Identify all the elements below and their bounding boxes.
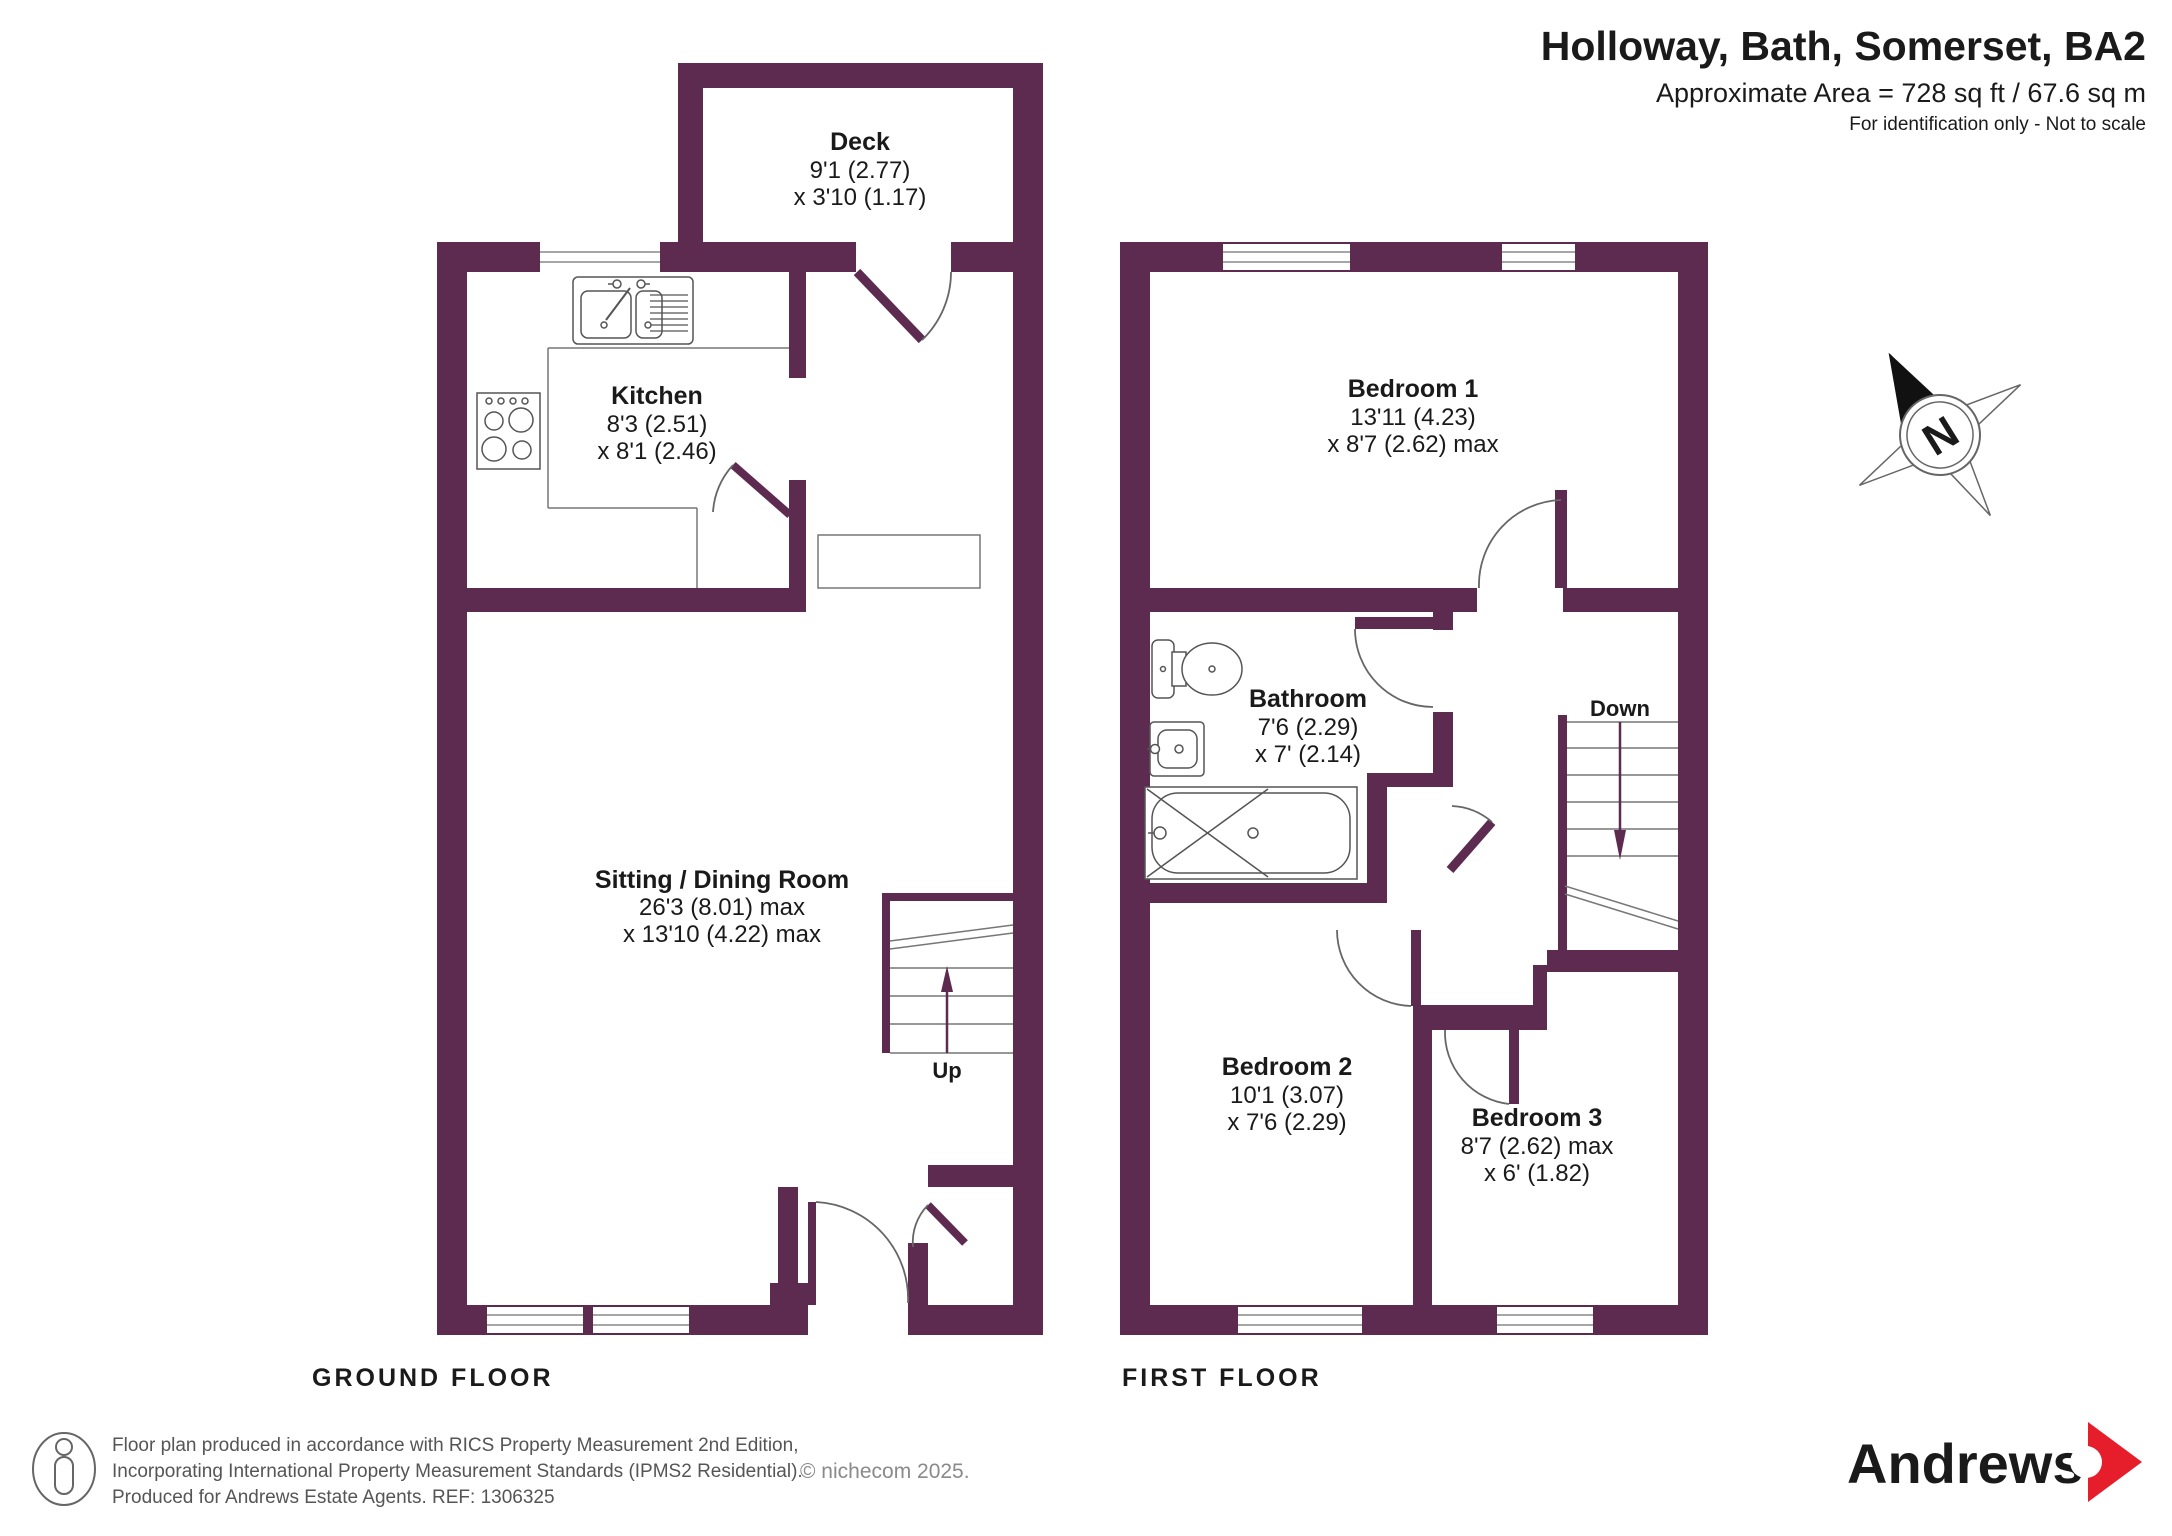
up-stairs: Up [890, 925, 1013, 1083]
bedroom1-dim-2: x 8'7 (2.62) max [1327, 431, 1498, 458]
basin-icon [1147, 722, 1204, 776]
porch-door [913, 1205, 965, 1247]
ground-floor-doors [713, 272, 965, 1305]
toilet-icon [1152, 640, 1242, 698]
bathroom-dim-1: 7'6 (2.29) [1258, 714, 1359, 741]
bedroom3-window [1497, 1307, 1593, 1333]
sitting-room-window-left [487, 1307, 583, 1333]
bedroom1-door [1479, 490, 1567, 588]
first-floor-plan: Down [1120, 242, 1708, 1392]
bedroom3-label: Bedroom 3 [1472, 1104, 1603, 1132]
bedroom2-dim-2: x 7'6 (2.29) [1227, 1109, 1346, 1136]
bedroom1-window-left [1223, 244, 1350, 270]
entrance-door [808, 1202, 908, 1305]
bedroom1-window-right [1502, 244, 1575, 270]
bedroom1-label: Bedroom 1 [1348, 375, 1479, 403]
kitchen-window [540, 244, 660, 270]
deck-dim-1: 9'1 (2.77) [810, 157, 911, 184]
entrance-opening [808, 1305, 908, 1335]
bedroom2-window [1238, 1307, 1362, 1333]
down-stairs: Down [1565, 696, 1678, 929]
bedroom3-door [1445, 1030, 1519, 1104]
down-stairs-label: Down [1590, 696, 1650, 721]
bathtub-icon [1145, 787, 1357, 879]
bedroom3-dim-2: x 6' (1.82) [1484, 1160, 1590, 1187]
bedroom3-dim-1: 8'7 (2.62) max [1461, 1133, 1614, 1160]
bathroom-dim-2: x 7' (2.14) [1255, 741, 1361, 768]
andrews-logo: Andrews [1847, 1422, 2142, 1502]
sitting-dining-dim-1: 26'3 (8.01) max [639, 894, 805, 921]
up-stairs-label: Up [932, 1058, 961, 1083]
deck-label: Deck [830, 128, 890, 156]
header-block: Holloway, Bath, Somerset, BA2 Approximat… [1541, 23, 2146, 135]
ground-floor-walls [437, 63, 1043, 1335]
floorplan-page: Up Deck 9'1 (2.77) x 3 [0, 0, 2172, 1536]
ground-floor-plan: Up Deck 9'1 (2.77) x 3 [312, 63, 1043, 1392]
sitting-dining-dim-2: x 13'10 (4.22) max [623, 921, 821, 948]
bedroom2-door [1337, 930, 1421, 1006]
floorplan-canvas: Up Deck 9'1 (2.77) x 3 [0, 0, 2172, 1536]
deck-door [857, 272, 951, 340]
footer-line-3: Produced for Andrews Estate Agents. REF:… [112, 1487, 555, 1508]
copyright-note: © nichecom 2025. [800, 1460, 970, 1483]
compass-icon: N [1808, 302, 2071, 566]
sink-icon [573, 277, 693, 344]
footer-block: Floor plan produced in accordance with R… [33, 1422, 2142, 1508]
area-subtitle: Approximate Area = 728 sq ft / 67.6 sq m [1656, 78, 2146, 108]
deck-dim-2: x 3'10 (1.17) [794, 184, 927, 211]
ground-floor-label: GROUND FLOOR [312, 1364, 554, 1392]
rics-person-icon [33, 1433, 95, 1505]
sitting-room-window-right [593, 1307, 689, 1333]
kitchen-dim-2: x 8'1 (2.46) [597, 438, 716, 465]
first-floor-label: FIRST FLOOR [1122, 1364, 1322, 1392]
scale-note: For identification only - Not to scale [1849, 114, 2146, 135]
page-title: Holloway, Bath, Somerset, BA2 [1541, 23, 2146, 69]
landing-door [1450, 806, 1492, 870]
sitting-dining-label: Sitting / Dining Room [595, 866, 849, 894]
footer-line-2: Incorporating International Property Mea… [112, 1461, 803, 1482]
kitchen-label: Kitchen [611, 382, 703, 410]
bathroom-label: Bathroom [1249, 685, 1367, 713]
bedroom2-dim-1: 10'1 (3.07) [1230, 1082, 1344, 1109]
stove-icon [477, 393, 540, 469]
footer-line-1: Floor plan produced in accordance with R… [112, 1435, 798, 1456]
bedroom1-dim-1: 13'11 (4.23) [1350, 404, 1476, 431]
bedroom2-label: Bedroom 2 [1222, 1053, 1353, 1081]
andrews-logo-text: Andrews [1847, 1432, 2084, 1495]
kitchen-door [713, 465, 790, 515]
kitchen-dim-1: 8'3 (2.51) [607, 411, 708, 438]
